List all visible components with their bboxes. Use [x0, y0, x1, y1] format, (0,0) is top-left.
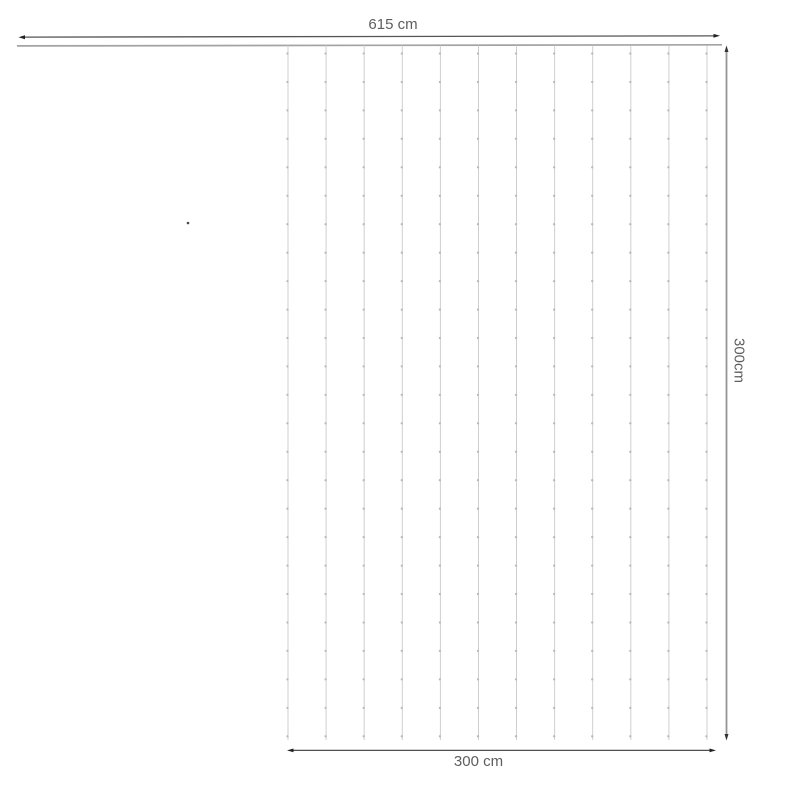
svg-text:615 cm: 615 cm [368, 16, 417, 33]
svg-text:300 cm: 300 cm [454, 753, 503, 770]
svg-text:300cm: 300cm [731, 338, 748, 383]
